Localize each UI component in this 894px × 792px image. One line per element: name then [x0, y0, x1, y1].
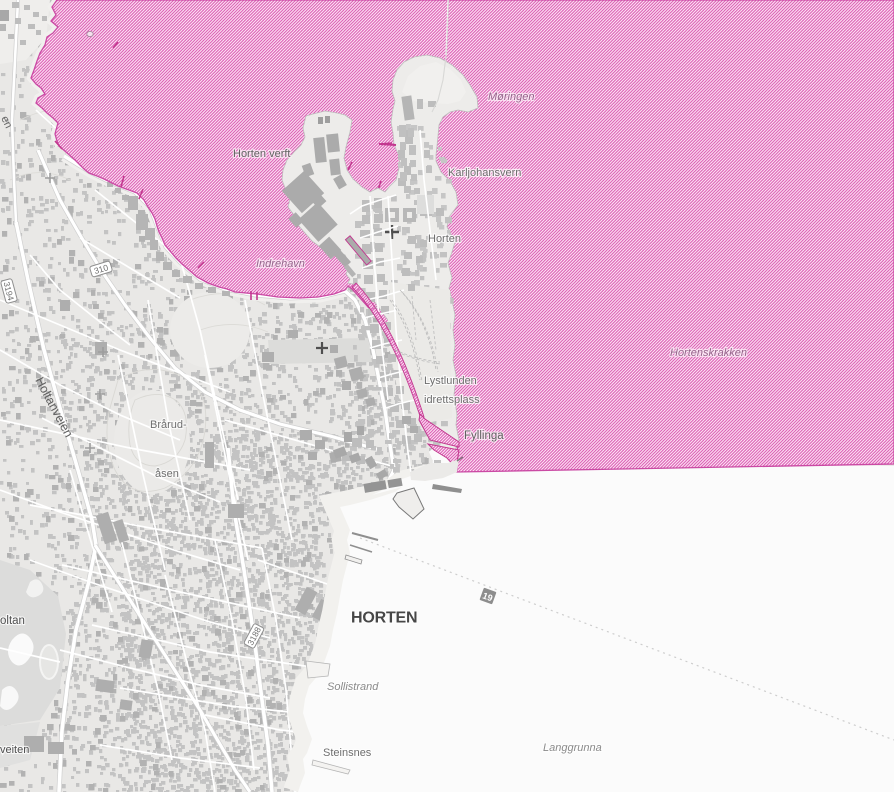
svg-text:veiten: veiten [0, 744, 29, 756]
svg-text:Brårud-: Brårud- [150, 419, 187, 431]
svg-text:Hortenskrakken: Hortenskrakken [670, 347, 747, 359]
svg-text:Sollistrand: Sollistrand [327, 681, 379, 693]
svg-text:Horten: Horten [428, 233, 461, 245]
svg-text:Langgrunna: Langgrunna [543, 742, 602, 754]
svg-text:Karljohansvern: Karljohansvern [448, 167, 521, 179]
svg-text:idrettsplass: idrettsplass [424, 394, 480, 406]
svg-text:oltan: oltan [0, 615, 25, 627]
svg-text:Indrehavn: Indrehavn [256, 258, 305, 270]
svg-text:åsen: åsen [155, 468, 179, 480]
svg-text:Horten verft: Horten verft [233, 148, 290, 160]
svg-text:Møringen: Møringen [488, 91, 534, 103]
svg-text:Fyllinga: Fyllinga [464, 430, 504, 442]
svg-text:Steinsnes: Steinsnes [323, 747, 372, 759]
svg-text:HORTEN: HORTEN [351, 610, 417, 627]
svg-text:Lystlunden: Lystlunden [424, 375, 477, 387]
